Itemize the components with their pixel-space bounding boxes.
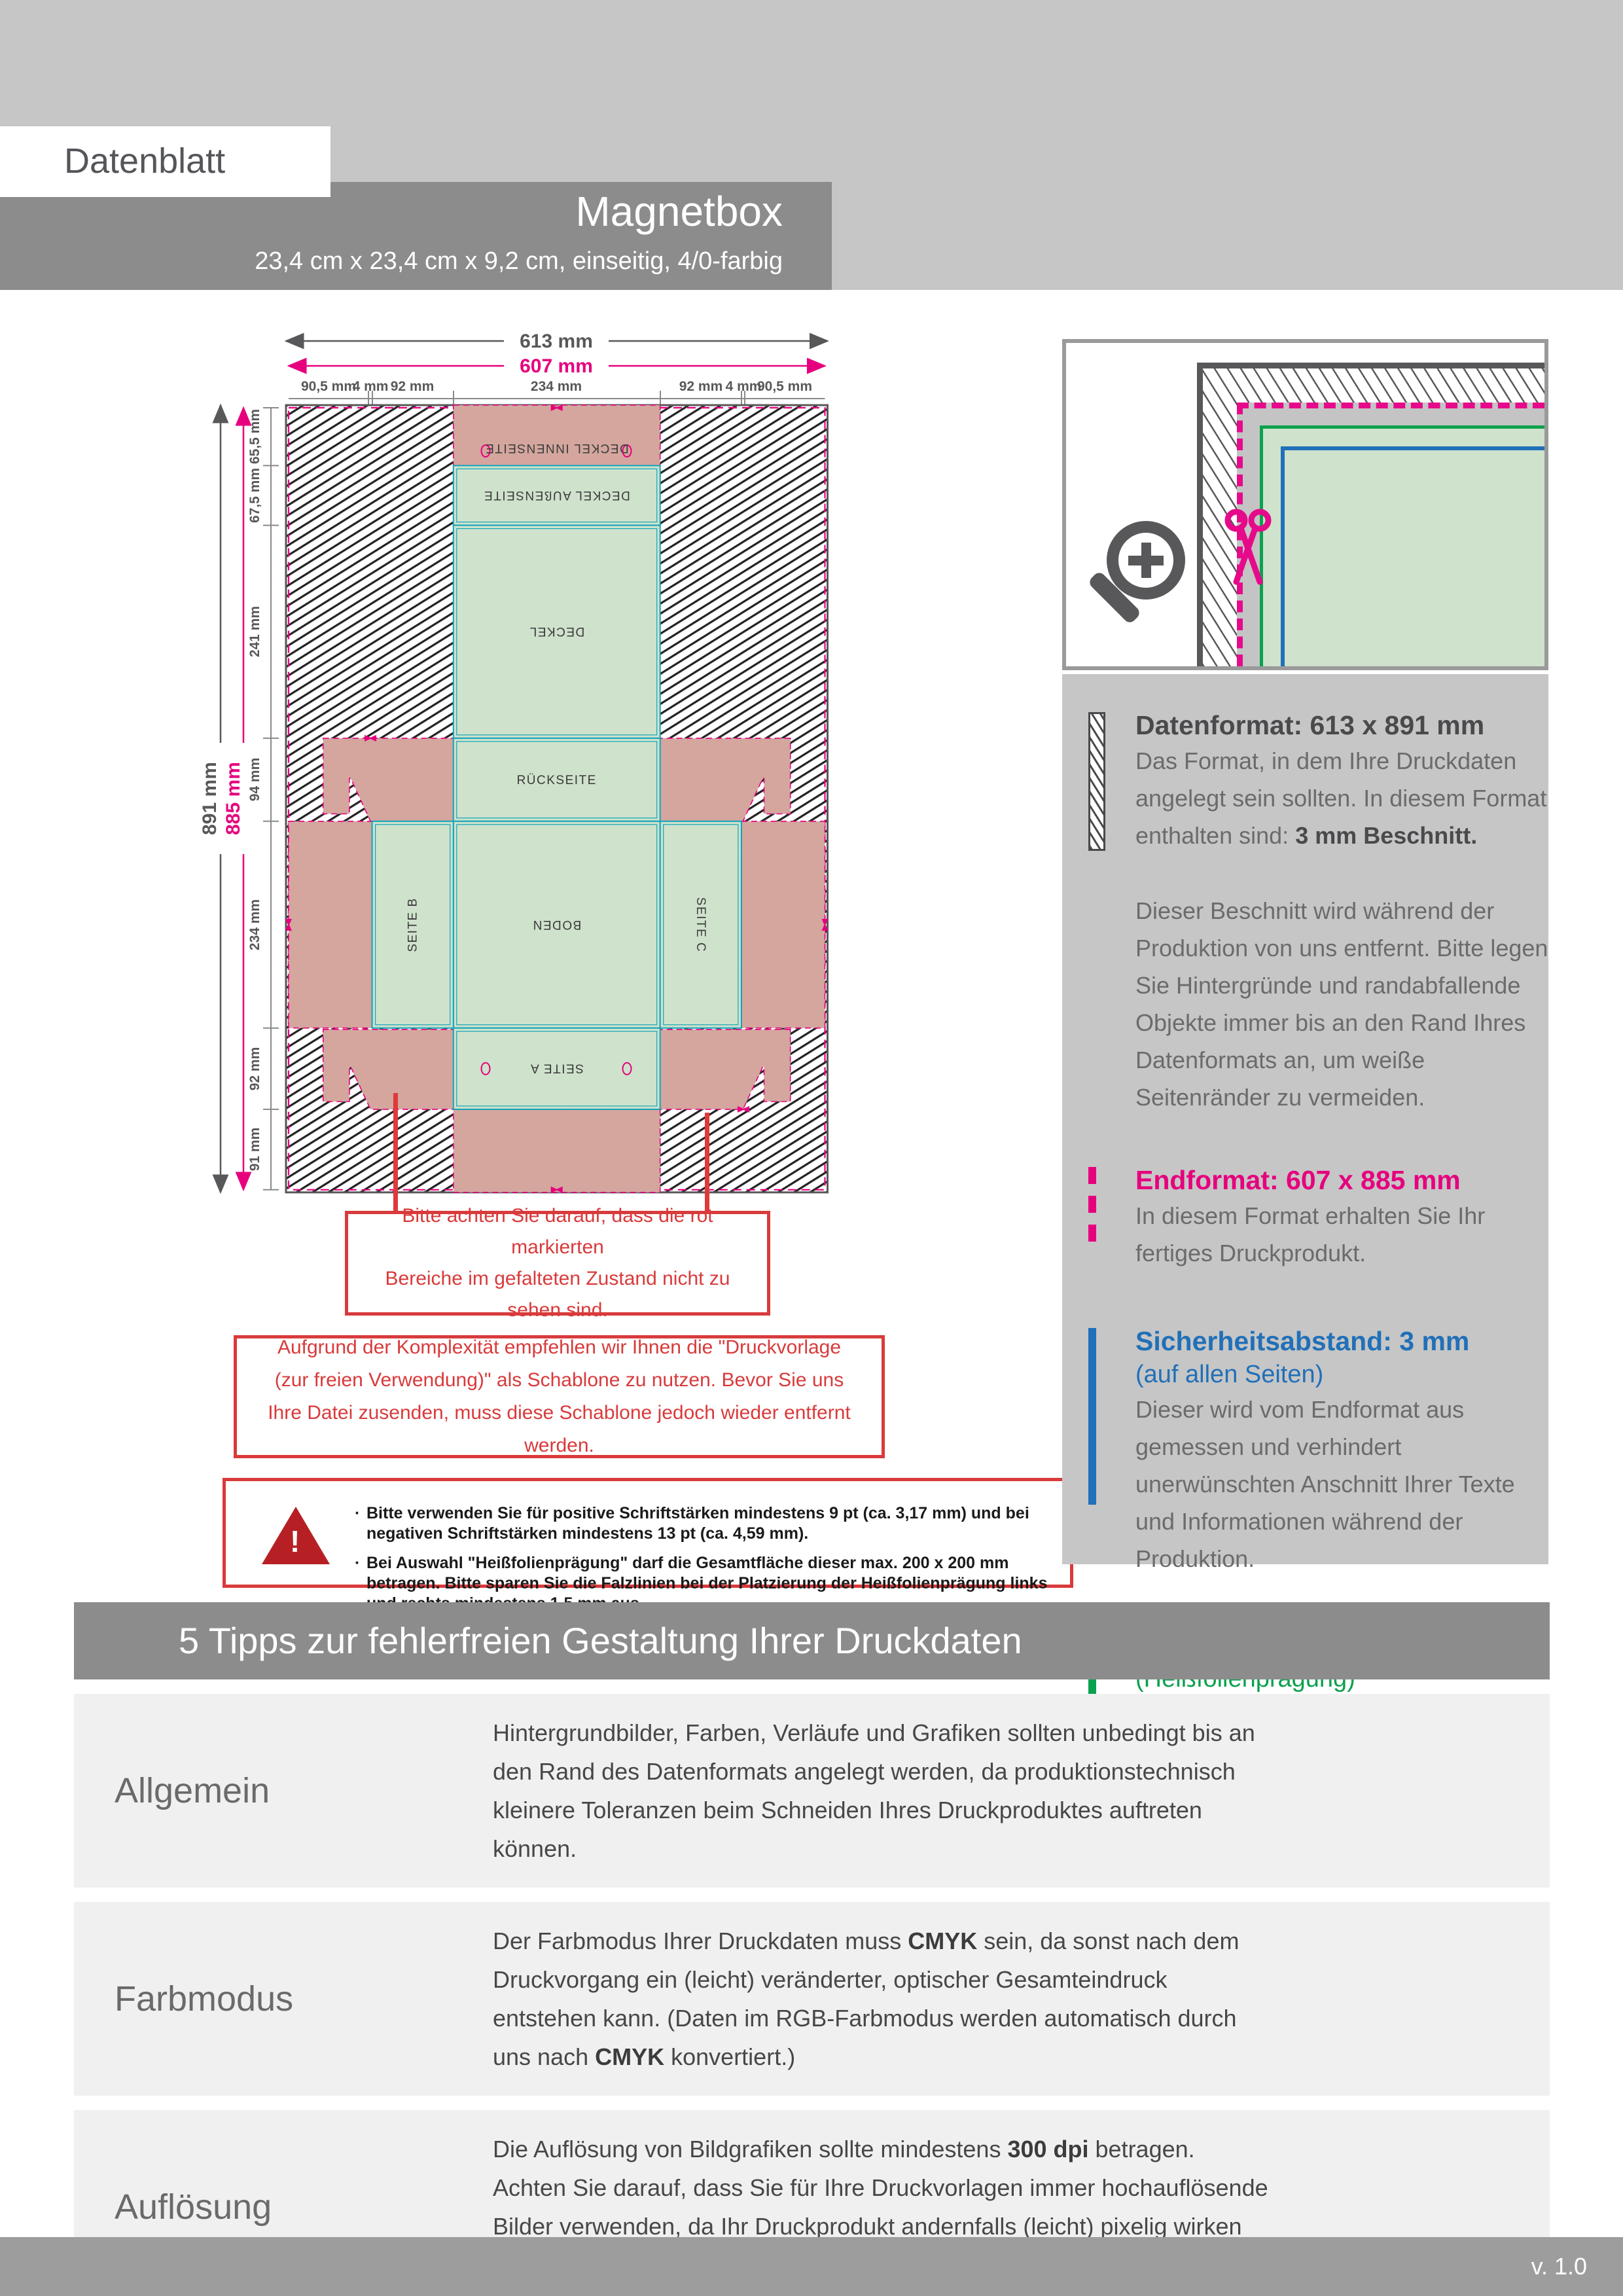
tip-text: Der Farbmodus Ihrer Druckdaten muss xyxy=(493,1928,908,1954)
legend-title: Datenformat: 613 x 891 mm xyxy=(1135,708,1522,742)
dim-width-inner: 607 mm xyxy=(289,355,825,378)
template-note-box: Aufgrund der Komplexität empfehlen wir I… xyxy=(234,1335,885,1458)
svg-text:SEITE C: SEITE C xyxy=(694,897,707,952)
legend-body: Das Format, in dem Ihre Druckdaten angel… xyxy=(1135,742,1560,854)
tip-row-farbmodus: Farbmodus Der Farbmodus Ihrer Druckdaten… xyxy=(74,1902,1550,2096)
red-marker-line-left xyxy=(393,1093,398,1211)
svg-text:4 mm: 4 mm xyxy=(726,379,762,394)
safety-swatch-icon xyxy=(1088,1328,1096,1505)
tip-label: Farbmodus xyxy=(74,1979,493,2019)
svg-text:241 mm: 241 mm xyxy=(247,606,262,657)
legend-body2: Dieser Beschnitt wird während der Produk… xyxy=(1135,892,1560,1116)
svg-text:92 mm: 92 mm xyxy=(391,379,435,394)
dim-width-outer: 613 mm xyxy=(286,331,828,353)
product-title: Magnetbox xyxy=(575,187,783,236)
legend-body: In diesem Format erhalten Sie Ihr fertig… xyxy=(1135,1197,1560,1272)
svg-text:BODEN: BODEN xyxy=(532,918,581,931)
svg-text:92 mm: 92 mm xyxy=(679,379,723,394)
tip-row-allgemein: Allgemein Hintergrundbilder, Farben, Ver… xyxy=(74,1694,1550,1888)
legend-title: Sicherheitsabstand: 3 mm xyxy=(1135,1324,1522,1358)
tip-label: Allgemein xyxy=(74,1770,493,1811)
tip-label: Auflösung xyxy=(74,2187,493,2227)
corner-safety-line xyxy=(1281,446,1544,666)
svg-text:234 mm: 234 mm xyxy=(247,899,262,950)
column-labels: 90,5 mm 4 mm 92 mm 234 mm 92 mm 4 mm 90,… xyxy=(289,379,825,406)
version-label: v. 1.0 xyxy=(1531,2253,1587,2280)
legend-body: Dieser wird vom Endformat aus gemessen u… xyxy=(1135,1391,1560,1577)
product-subtitle: 23,4 cm x 23,4 cm x 9,2 cm, einseitig, 4… xyxy=(255,247,783,276)
legend-endformat: Endformat: 607 x 885 mm In diesem Format… xyxy=(1088,1163,1522,1272)
legend-body-bold: 3 mm Beschnitt. xyxy=(1295,822,1477,849)
svg-text:DECKEL AUßENSEITE: DECKEL AUßENSEITE xyxy=(484,488,630,502)
red-note-line2: Bereiche im gefalteten Zustand nicht zu … xyxy=(348,1263,767,1326)
product-banner: Magnetbox 23,4 cm x 23,4 cm x 9,2 cm, ei… xyxy=(0,182,832,290)
svg-text:4 mm: 4 mm xyxy=(353,379,389,394)
svg-text:91 mm: 91 mm xyxy=(247,1128,262,1172)
svg-text:891 mm: 891 mm xyxy=(199,762,221,835)
magnifier-icon xyxy=(1107,521,1185,600)
svg-text:RÜCKSEITE: RÜCKSEITE xyxy=(517,774,597,787)
cutline-swatch-icon xyxy=(1088,1167,1096,1244)
svg-text:SEITE A: SEITE A xyxy=(530,1062,584,1075)
tip-body: Hintergrundbilder, Farben, Verläufe und … xyxy=(493,1713,1272,1868)
page-title: Datenblatt xyxy=(64,141,225,181)
svg-text:67,5 mm: 67,5 mm xyxy=(247,468,262,523)
svg-text:607 mm: 607 mm xyxy=(520,355,593,377)
tip-body: Der Farbmodus Ihrer Druckdaten muss CMYK… xyxy=(493,1922,1272,2076)
red-note-box: Bitte achten Sie darauf, dass die rot ma… xyxy=(345,1211,770,1316)
tip-text: Die Auflösung von Bildgrafiken sollte mi… xyxy=(493,2136,1007,2162)
tip-text-bold: CMYK xyxy=(908,1928,977,1954)
legend-subtitle: (auf allen Seiten) xyxy=(1135,1358,1522,1391)
svg-text:DECKEL: DECKEL xyxy=(529,624,584,638)
warning-icon: ! xyxy=(262,1507,330,1564)
doc-label-box: Datenblatt xyxy=(0,126,330,197)
warning-box: ! Bitte verwenden Sie für positive Schri… xyxy=(223,1478,1073,1588)
template-note-text: Aufgrund der Komplexität empfehlen wir I… xyxy=(237,1331,882,1462)
svg-text:234 mm: 234 mm xyxy=(531,379,582,394)
bleed-swatch-icon xyxy=(1088,712,1105,851)
legend-datenformat: Datenformat: 613 x 891 mm Das Format, in… xyxy=(1088,708,1522,1116)
svg-text:613 mm: 613 mm xyxy=(520,331,593,352)
svg-text:885 mm: 885 mm xyxy=(223,762,244,835)
svg-text:SEITE B: SEITE B xyxy=(406,897,420,952)
svg-text:92 mm: 92 mm xyxy=(247,1047,262,1091)
scissors-icon xyxy=(1209,505,1287,590)
red-note-line1: Bitte achten Sie darauf, dass die rot ma… xyxy=(348,1200,767,1263)
footer-bar: v. 1.0 xyxy=(0,2237,1623,2296)
svg-text:DECKEL INNENSEITE: DECKEL INNENSEITE xyxy=(485,441,629,455)
warning-item: Bitte verwenden Sie für positive Schrift… xyxy=(366,1503,1050,1544)
svg-text:94 mm: 94 mm xyxy=(247,758,262,802)
svg-text:90,5 mm: 90,5 mm xyxy=(757,379,812,394)
svg-text:65,5 mm: 65,5 mm xyxy=(247,409,262,464)
tip-text-bold: CMYK xyxy=(595,2043,664,2070)
legend-sicherheitsabstand: Sicherheitsabstand: 3 mm (auf allen Seit… xyxy=(1088,1324,1522,1577)
tips-banner: 5 Tipps zur fehlerfreien Gestaltung Ihre… xyxy=(74,1602,1550,1679)
diecut-diagram: 613 mm 607 mm 90,5 mm 4 mm 92 mm 234 mm … xyxy=(196,331,916,1240)
red-marker-line-right xyxy=(705,1113,709,1211)
tip-text: konvertiert.) xyxy=(664,2043,795,2070)
datasheet-page: Magnetbox 23,4 cm x 23,4 cm x 9,2 cm, ei… xyxy=(0,0,1623,2296)
corner-veredelung-line xyxy=(1260,425,1544,666)
legend-panel: Datenformat: 613 x 891 mm Das Format, in… xyxy=(1062,674,1548,1564)
legend-title: Endformat: 607 x 885 mm xyxy=(1135,1163,1522,1197)
tips-section: 5 Tipps zur fehlerfreien Gestaltung Ihre… xyxy=(74,1602,1550,2296)
svg-text:90,5 mm: 90,5 mm xyxy=(301,379,356,394)
corner-illustration xyxy=(1062,339,1548,670)
row-labels: 65,5 mm 67,5 mm 241 mm 94 mm 234 mm 92 m… xyxy=(247,408,279,1190)
tip-text-bold: 300 dpi xyxy=(1007,2136,1088,2162)
